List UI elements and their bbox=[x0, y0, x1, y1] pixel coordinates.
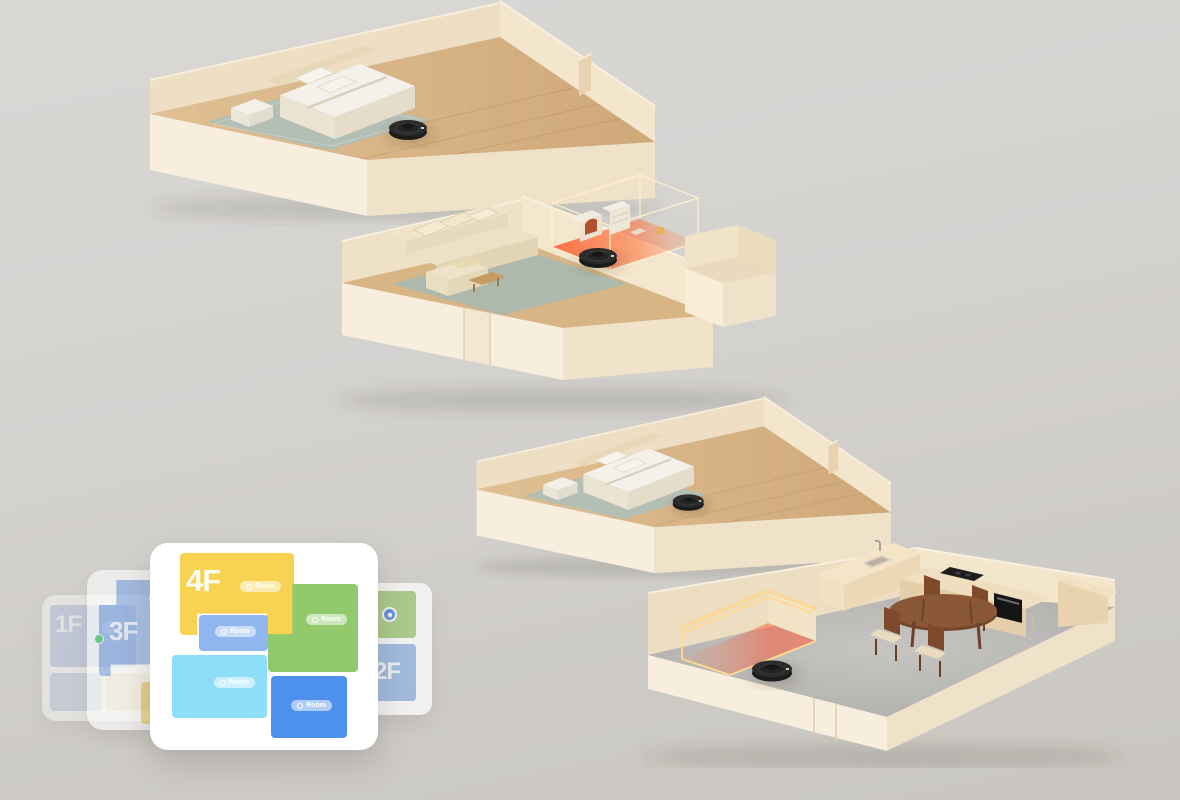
floor-map-stack: 1F 3F ▣ 2F bbox=[40, 543, 485, 755]
room-tag[interactable]: Room bbox=[214, 677, 255, 688]
map-room[interactable]: Room bbox=[271, 676, 347, 738]
floor2-doorway bbox=[464, 308, 490, 365]
room-tag[interactable]: Room bbox=[215, 626, 256, 637]
scene: 1F 3F ▣ 2F bbox=[0, 0, 1180, 800]
dock-icon bbox=[382, 607, 397, 622]
floor-label-4f: 4F bbox=[186, 565, 220, 596]
floor3d-living-room bbox=[330, 172, 810, 422]
floor2-alcove bbox=[685, 225, 776, 327]
floor3-stub-wall bbox=[828, 440, 838, 474]
floor-label-1f: 1F bbox=[55, 613, 81, 637]
floor-label-3f: 3F bbox=[109, 618, 137, 644]
map-room[interactable]: Room bbox=[199, 615, 268, 651]
floor1-stub-wall bbox=[579, 54, 591, 96]
map-card-4f[interactable]: 4F Room Room Room Room Room bbox=[150, 543, 378, 750]
dining-table bbox=[889, 594, 997, 628]
online-dot bbox=[94, 634, 104, 644]
room-tag[interactable]: Room bbox=[291, 700, 332, 711]
room-tag[interactable]: Room bbox=[240, 581, 281, 592]
room-tag[interactable]: Room bbox=[306, 614, 347, 625]
floor3d-kitchen bbox=[628, 523, 1148, 768]
map-room[interactable]: Room bbox=[172, 655, 267, 718]
